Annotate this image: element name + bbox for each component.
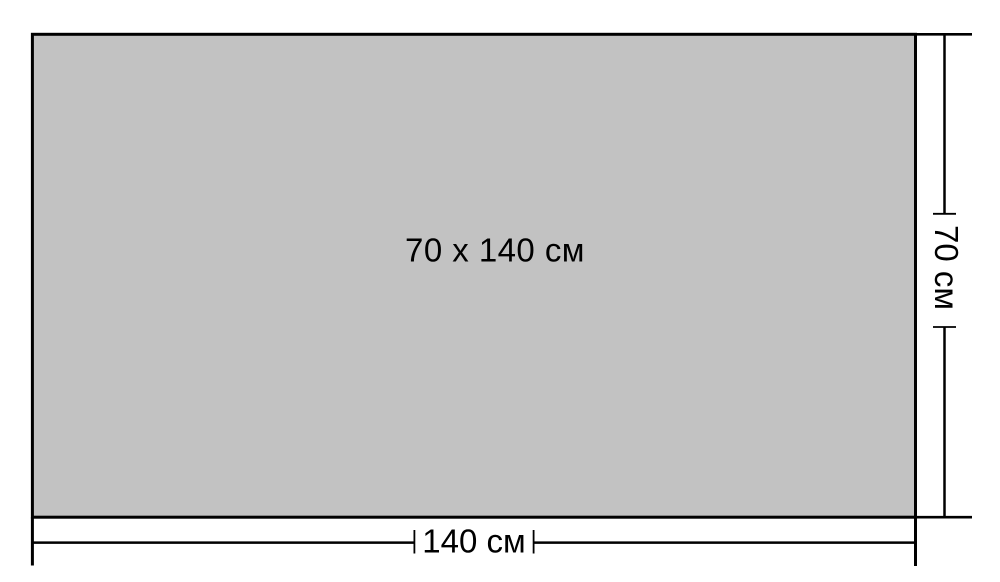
svg-text:70 x 140 см: 70 x 140 см [405,232,585,269]
svg-text:140 см: 140 см [422,523,525,560]
svg-text:70 см: 70 см [928,225,965,310]
